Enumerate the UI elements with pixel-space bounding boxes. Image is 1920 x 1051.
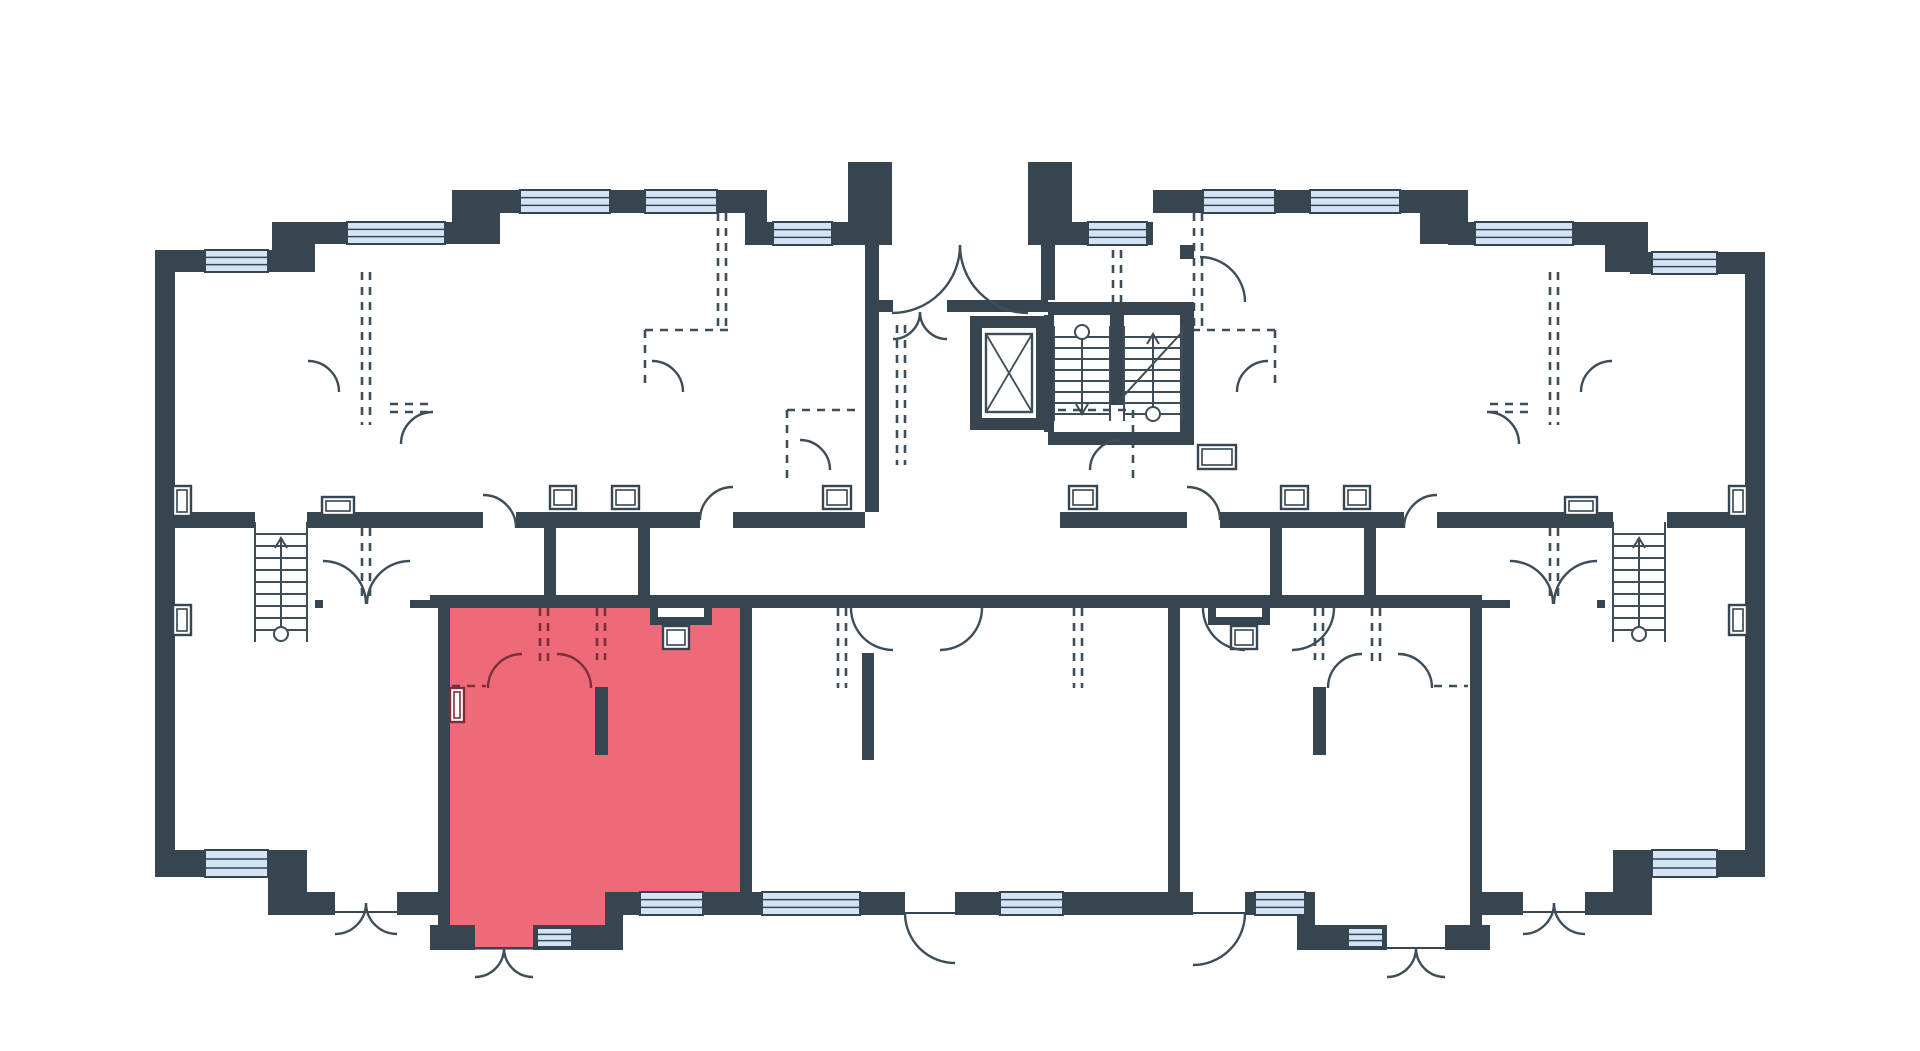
window: [520, 190, 610, 213]
wall-segment: [1313, 687, 1326, 755]
wall-segment: [862, 653, 874, 760]
walls-layer: [155, 162, 1765, 950]
wall-segment: [848, 162, 892, 245]
window: [1475, 222, 1573, 245]
door-arc: [700, 487, 733, 520]
door-arc: [366, 903, 397, 934]
door-arc: [1200, 257, 1245, 302]
wall-segment: [1041, 245, 1055, 300]
door-arc: [920, 312, 947, 339]
wall-segment: [595, 687, 608, 755]
elevator-car-icon: [986, 334, 1032, 412]
wall-segment: [1028, 162, 1072, 245]
door-arc: [1237, 361, 1268, 392]
ventilation-shaft-icon: [823, 486, 851, 509]
wall-segment: [1180, 245, 1194, 259]
floor-plan-page: [0, 0, 1920, 1051]
window: [1652, 850, 1717, 877]
window: [1310, 190, 1400, 213]
door-arc: [1387, 948, 1416, 977]
window: [1000, 892, 1063, 915]
wall-segment: [865, 245, 879, 512]
wall-segment: [315, 600, 323, 608]
ventilation-shaft-icon: [1729, 605, 1747, 635]
door-arc: [851, 608, 893, 650]
wall-segment: [155, 250, 175, 877]
door-arc: [1328, 654, 1362, 688]
wall-segment: [430, 925, 475, 950]
staircase-right: [1613, 522, 1665, 642]
door-arc: [323, 561, 366, 604]
door-arc: [1187, 487, 1220, 520]
wall-segment: [1364, 528, 1376, 598]
window: [1652, 252, 1717, 274]
door-arc: [1554, 903, 1585, 934]
door-arc: [1193, 913, 1245, 965]
wall-segment: [1470, 595, 1482, 950]
wall-segment: [752, 595, 880, 608]
door-arc: [652, 361, 683, 392]
ventilation-shaft-icon: [1344, 486, 1370, 509]
wall-segment: [1445, 925, 1490, 950]
window: [762, 892, 860, 915]
wall-segment: [733, 512, 865, 528]
door-arc: [1416, 948, 1445, 977]
ventilation-shaft-icon: [612, 486, 639, 509]
window: [205, 250, 268, 272]
floor-plan: [0, 0, 1920, 1051]
staircase-left: [255, 522, 307, 642]
wall-segment: [879, 300, 893, 312]
door-arc: [1510, 561, 1553, 604]
wall-segment: [430, 595, 752, 608]
wall-segment: [1168, 595, 1180, 905]
door-arc: [1292, 608, 1334, 650]
wall-segment: [1060, 512, 1187, 528]
ventilation-shaft-icon: [173, 605, 191, 635]
window: [205, 850, 268, 877]
window: [537, 928, 572, 947]
wall-segment: [283, 892, 335, 915]
wall-segment: [1745, 252, 1765, 877]
door-arc: [1523, 903, 1554, 934]
door-arc: [1554, 561, 1597, 604]
door-arc: [335, 903, 366, 934]
wall-segment: [740, 595, 752, 905]
wall-segment: [1597, 600, 1605, 608]
ventilation-shaft-icon: [173, 486, 191, 516]
window: [645, 190, 717, 213]
ventilation-shaft-icon: [663, 626, 689, 649]
wall-segment: [1048, 432, 1190, 445]
door-arc: [367, 561, 410, 604]
door-arc: [800, 440, 830, 470]
ventilation-shaft-icon: [322, 497, 354, 515]
ventilation-shaft-icon: [1198, 445, 1236, 469]
door-arc: [483, 495, 516, 528]
ventilation-shaft-icon: [550, 486, 576, 509]
wall-segment: [1270, 528, 1282, 598]
window: [1088, 222, 1147, 245]
ventilation-shaft-icon: [1281, 486, 1308, 509]
door-arc: [1581, 361, 1612, 392]
wall-segment: [955, 892, 1180, 915]
door-arc: [401, 412, 433, 444]
door-arc: [1398, 654, 1432, 688]
wall-segment: [1180, 892, 1193, 915]
wall-segment: [745, 190, 767, 245]
window: [1255, 892, 1305, 915]
wall-segment: [516, 512, 700, 528]
wall-segment: [1180, 595, 1482, 608]
door-arc: [475, 948, 504, 977]
wall-segment: [544, 528, 556, 598]
elevator-shaft: [970, 316, 1048, 430]
wall-segment: [1220, 512, 1404, 528]
door-arc: [905, 913, 955, 963]
ventilation-shaft-icon: [1729, 486, 1747, 516]
wall-segment: [638, 528, 650, 598]
ventilation-shaft-icon: [450, 688, 464, 722]
ventilation-shaft-icon: [1231, 626, 1257, 649]
door-arc: [1487, 412, 1519, 444]
wall-segment: [1482, 600, 1510, 608]
wall-segment: [650, 617, 712, 625]
wall-segment: [410, 600, 438, 608]
wall-segment: [397, 892, 438, 915]
wall-segment: [472, 190, 767, 213]
door-arc: [308, 361, 339, 392]
window: [1203, 190, 1275, 213]
vents-layer: [173, 445, 1747, 722]
door-arc: [504, 948, 533, 977]
ventilation-shaft-icon: [1069, 486, 1097, 509]
wall-segment: [438, 595, 450, 950]
wall-segment: [1153, 190, 1448, 213]
ventilation-shaft-icon: [1565, 497, 1597, 515]
wall-segment: [1110, 313, 1124, 405]
window: [347, 222, 445, 244]
wall-segment: [1208, 617, 1270, 625]
window: [640, 892, 703, 915]
door-arc: [940, 608, 982, 650]
window: [773, 222, 832, 245]
wall-segment: [880, 595, 1168, 608]
door-arc: [1404, 495, 1437, 528]
window: [1348, 928, 1383, 947]
wall-segment: [1482, 892, 1523, 915]
